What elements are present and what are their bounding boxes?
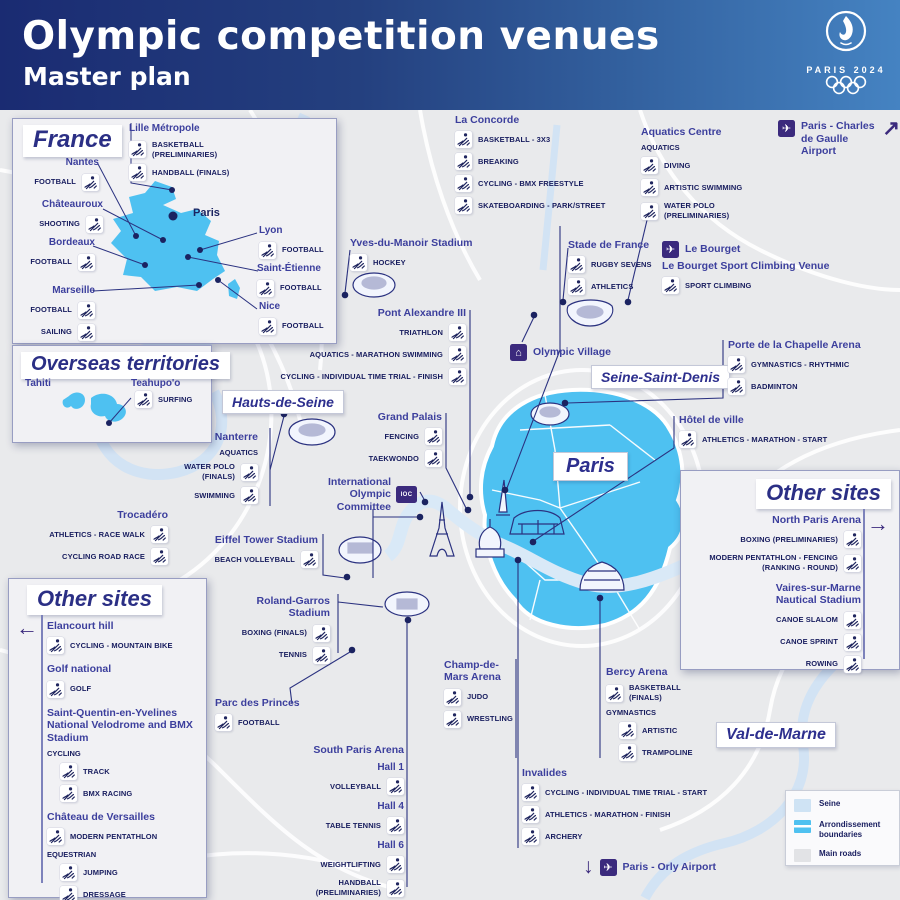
- venue-entry: Golf nationalGOLF: [47, 663, 197, 697]
- venue-name: Vaires-sur-Marne Nautical Stadium: [761, 582, 861, 607]
- venue-entry: North Paris ArenaBOXING (PRELIMINARIES)M…: [689, 514, 861, 573]
- france-city-lyon: LyonFOOTBALL: [259, 225, 335, 264]
- sport-row: ARCHERY: [522, 828, 737, 845]
- venue-le-bourget: ✈Le BourgetLe Bourget Sport Climbing Ven…: [662, 241, 842, 299]
- sport-label: ATHLETICS - MARATHON - FINISH: [545, 810, 671, 820]
- marathon-swimming-icon: [449, 346, 466, 363]
- football-icon: [257, 280, 274, 297]
- volleyball-icon: [387, 778, 404, 795]
- equestrian-jumping-icon: [60, 864, 77, 881]
- football-icon: [78, 254, 95, 271]
- venue-name: Grand Palais: [330, 411, 442, 423]
- region-label-paris: Paris: [553, 452, 628, 481]
- other-sites-west-panel: Other sites ← Elancourt hillCYCLING - MO…: [8, 578, 207, 898]
- page-subtitle: Master plan: [23, 62, 191, 91]
- sport-row: ARTISTIC SWIMMING: [641, 179, 801, 196]
- track-cycling-icon: [60, 763, 77, 780]
- sport-label: MODERN PENTATHLON: [70, 832, 157, 842]
- athletics-icon: [568, 278, 585, 295]
- artistic-swimming-icon: [641, 179, 658, 196]
- legend-label: Main roads: [819, 849, 861, 859]
- sport-row: CYCLING - INDIVIDUAL TIME TRIAL - FINISH: [266, 368, 466, 385]
- venue-entry: Elancourt hillCYCLING - MOUNTAIN BIKE: [47, 620, 197, 654]
- venue-olympic-village: ⌂Olympic Village: [510, 344, 640, 361]
- sport-row: BASKETBALL (FINALS): [606, 683, 711, 703]
- legend-label: Arrondissement boundaries: [819, 820, 891, 841]
- sport-label: BMX RACING: [83, 789, 132, 799]
- venue-champ-de-mars: Champ-de-Mars ArenaJUDOWRESTLING: [444, 659, 522, 733]
- venue-invalides: InvalidesCYCLING - INDIVIDUAL TIME TRIAL…: [522, 767, 737, 850]
- sport-row: FOOTBALL: [27, 254, 95, 271]
- sport-label: CYCLING ROAD RACE: [62, 552, 145, 562]
- group-subheading: Hall 6: [294, 840, 404, 851]
- sport-label: CYCLING - BMX FREESTYLE: [478, 179, 584, 189]
- venue-name: Champ-de-Mars Arena: [444, 659, 522, 684]
- diving-icon: [641, 157, 658, 174]
- arrow-left-icon: ←: [16, 617, 38, 639]
- ioc-icon: IOC: [396, 486, 417, 503]
- breaking-icon: [455, 153, 472, 170]
- shooting-icon: [86, 216, 103, 233]
- tennis-icon: [313, 647, 330, 664]
- marathon-icon: [679, 431, 696, 448]
- france-city-bordeaux: BordeauxFOOTBALL: [27, 237, 95, 276]
- legend-item-seine: Seine: [794, 799, 891, 812]
- sport-label: TRACK: [83, 767, 110, 777]
- sport-row: SHOOTING: [23, 216, 103, 233]
- france-inset-panel: France Paris Lille MétropoleBASKETBALL (…: [12, 118, 337, 344]
- sport-label: SPORT CLIMBING: [685, 281, 751, 291]
- sport-row: ATHLETICS - MARATHON - FINISH: [522, 806, 737, 823]
- sport-row: JUDO: [444, 689, 522, 706]
- sport-label: WATER POLO (PRELIMINARIES): [664, 201, 744, 221]
- sport-label: RUGBY SEVENS: [591, 260, 652, 270]
- venue-name: Nantes: [27, 157, 99, 169]
- arrondissement-color-swatch: [794, 820, 811, 833]
- legend: Seine Arrondissement boundaries Main roa…: [785, 790, 900, 866]
- sailing-icon: [78, 324, 95, 341]
- main-roads-color-swatch: [794, 849, 811, 862]
- paris-dot: [169, 212, 178, 221]
- legend-item-arrondissement: Arrondissement boundaries: [794, 820, 891, 841]
- cycling-time-trial-icon: [449, 368, 466, 385]
- marathon-icon: [522, 806, 539, 823]
- group-subheading: EQUESTRIAN: [47, 850, 197, 859]
- sport-row: BEACH VOLLEYBALL: [210, 551, 318, 568]
- region-label-hauts-de-seine: Hauts-de-Seine: [222, 390, 344, 414]
- sport-row: ARTISTIC: [619, 722, 711, 739]
- venue-grand-palais: Grand PalaisFENCINGTAEKWONDO: [330, 411, 442, 472]
- archery-icon: [522, 828, 539, 845]
- sport-label: CYCLING - MOUNTAIN BIKE: [70, 641, 173, 651]
- arrow-northeast-icon: ↗: [882, 120, 900, 139]
- fencing-icon: [425, 428, 442, 445]
- sport-row: WATER POLO (PRELIMINARIES): [641, 201, 801, 221]
- france-city-marseille: MarseilleFOOTBALLSAILING: [27, 285, 95, 346]
- group-subheading: CYCLING: [47, 749, 197, 758]
- venue-name: Bordeaux: [27, 237, 95, 249]
- group-subheading: AQUATICS: [88, 448, 258, 457]
- sport-row: TABLE TENNIS: [294, 817, 404, 834]
- water-polo-icon: [641, 203, 658, 220]
- badminton-icon: [728, 378, 745, 395]
- olympic-village-icon: ⌂: [510, 344, 527, 361]
- venue-name: Le Bourget: [685, 243, 740, 255]
- venue-name: South Paris Arena: [294, 744, 404, 756]
- arrow-right-icon: →: [867, 513, 889, 535]
- airport-cdg-label: Paris - Charles de Gaulle Airport: [801, 120, 876, 158]
- sport-label: JUDO: [467, 692, 488, 702]
- sport-label: SHOOTING: [39, 219, 80, 229]
- venue-name: Olympic Village: [533, 346, 611, 358]
- sport-row: CANOE SPRINT: [689, 634, 861, 651]
- venue-name: Roland-Garros Stadium: [216, 595, 330, 620]
- sport-label: WATER POLO (FINALS): [173, 462, 235, 482]
- sport-label: JUMPING: [83, 868, 118, 878]
- france-panel-title: France: [23, 125, 122, 157]
- venue-name: Parc des Princes: [215, 697, 325, 709]
- venue-ioc: International Olympic CommitteeIOC: [295, 476, 417, 513]
- sport-label: BOXING (FINALS): [242, 628, 307, 638]
- venue-south-paris-arena: South Paris ArenaHall 1VOLLEYBALLHall 4T…: [294, 744, 404, 900]
- venue-name: Eiffel Tower Stadium: [210, 534, 318, 546]
- sport-label: ATHLETICS - RACE WALK: [49, 530, 145, 540]
- sport-row: FOOTBALL: [215, 714, 325, 731]
- sport-row: CYCLING ROAD RACE: [38, 548, 168, 565]
- sport-label: BASKETBALL (PRELIMINARIES): [152, 140, 242, 160]
- venue-name: Lille Métropole: [129, 123, 329, 135]
- sport-row: GYMNASTICS - RHYTHMIC: [728, 356, 883, 373]
- venue-name: Porte de la Chapelle Arena: [728, 339, 883, 351]
- football-icon: [215, 714, 232, 731]
- sport-label: BASKETBALL (FINALS): [629, 683, 691, 703]
- paris-city-label: Paris: [193, 207, 220, 219]
- olympic-rings-icon: [822, 75, 870, 95]
- sport-row: CYCLING - MOUNTAIN BIKE: [47, 637, 197, 654]
- sport-row: ATHLETICS - RACE WALK: [38, 526, 168, 543]
- sport-row: TENNIS: [216, 647, 330, 664]
- sport-label: HOCKEY: [373, 258, 406, 268]
- sport-row: FOOTBALL: [259, 318, 335, 335]
- paris-2024-logo: PARIS 2024: [806, 8, 886, 100]
- sport-row: SPORT CLIMBING: [662, 277, 842, 294]
- airport-orly: ↓ ✈ Paris - Orly Airport: [583, 858, 716, 877]
- sport-label: FOOTBALL: [280, 283, 322, 293]
- venue-trocadero: TrocadéroATHLETICS - RACE WALKCYCLING RO…: [38, 509, 168, 570]
- sport-row: VOLLEYBALL: [294, 778, 404, 795]
- poster: Olympic competition venues Master plan P…: [0, 0, 900, 900]
- judo-icon: [444, 689, 461, 706]
- sport-row: SAILING: [27, 324, 95, 341]
- group-subheading: AQUATICS: [641, 143, 801, 152]
- sport-label: BEACH VOLLEYBALL: [215, 555, 295, 565]
- venue-yves-du-manoir: Yves-du-Manoir StadiumHOCKEY: [350, 237, 510, 276]
- venue-name: La Concorde: [455, 114, 690, 126]
- venue-name: Nice: [259, 301, 335, 313]
- sport-row: WATER POLO (FINALS): [88, 462, 258, 482]
- region-label-seine-saint-denis: Seine-Saint-Denis: [591, 365, 730, 389]
- sport-row: WEIGHTLIFTING: [294, 856, 404, 873]
- sport-label: CYCLING - INDIVIDUAL TIME TRIAL - START: [545, 788, 707, 798]
- modern-pentathlon-icon: [47, 828, 64, 845]
- venue-bercy: Bercy ArenaBASKETBALL (FINALS)GYMNASTICS…: [606, 666, 711, 766]
- sport-row: TRACK: [60, 763, 197, 780]
- sport-row: BOXING (FINALS): [216, 625, 330, 642]
- venue-hotel-de-ville: Hôtel de villeATHLETICS - MARATHON - STA…: [679, 414, 854, 453]
- sport-label: SWIMMING: [194, 491, 235, 501]
- sport-label: MODERN PENTATHLON - FENCING (RANKING - R…: [706, 553, 838, 573]
- sport-label: SAILING: [41, 327, 72, 337]
- venue-name: Aquatics Centre: [641, 126, 801, 138]
- sport-row: DRESSAGE: [60, 886, 197, 900]
- france-city-nantes: NantesFOOTBALL: [27, 157, 99, 196]
- other-sites-east-panel: Other sites → North Paris ArenaBOXING (P…: [680, 470, 900, 670]
- venue-name: Château de Versailles: [47, 811, 197, 823]
- cycling-time-trial-icon: [522, 784, 539, 801]
- sport-label: SURFING: [158, 395, 192, 405]
- sport-row: FENCING: [330, 428, 442, 445]
- sport-label: AQUATICS - MARATHON SWIMMING: [310, 350, 443, 360]
- sport-label: DIVING: [664, 161, 690, 171]
- beach-volleyball-icon: [301, 551, 318, 568]
- venue-aquatics-centre: Aquatics CentreAQUATICSDIVINGARTISTIC SW…: [641, 126, 801, 226]
- sport-label: FOOTBALL: [238, 718, 280, 728]
- venue-name: Golf national: [47, 663, 197, 675]
- sport-row: GOLF: [47, 681, 197, 698]
- sport-row: BASKETBALL (PRELIMINARIES): [129, 140, 329, 160]
- basketball-icon: [129, 141, 146, 158]
- sport-label: VOLLEYBALL: [330, 782, 381, 792]
- football-icon: [78, 302, 95, 319]
- golf-icon: [47, 681, 64, 698]
- weightlifting-icon: [387, 856, 404, 873]
- flame-emblem-icon: [824, 8, 868, 58]
- sport-row: CANOE SLALOM: [689, 612, 861, 629]
- france-city-chateauroux: ChâteaurouxSHOOTING: [23, 199, 103, 238]
- sport-label: BOXING (PRELIMINARIES): [740, 535, 838, 545]
- sport-label: CYCLING - INDIVIDUAL TIME TRIAL - FINISH: [281, 372, 443, 382]
- sport-label: ARTISTIC: [642, 726, 677, 736]
- sport-label: CANOE SLALOM: [776, 615, 838, 625]
- sport-row: MODERN PENTATHLON - FENCING (RANKING - R…: [689, 553, 861, 573]
- sport-row: MODERN PENTATHLON: [47, 828, 197, 845]
- table-tennis-icon: [387, 817, 404, 834]
- dressage-icon: [60, 886, 77, 900]
- venue-entry: Château de VersaillesMODERN PENTATHLONEQ…: [47, 811, 197, 900]
- swimming-icon: [241, 487, 258, 504]
- sport-label: WEIGHTLIFTING: [321, 860, 381, 870]
- region-label-val-de-marne: Val-de-Marne: [716, 722, 836, 748]
- page-title: Olympic competition venues: [22, 14, 660, 59]
- airport-orly-label: Paris - Orly Airport: [623, 861, 717, 874]
- sport-label: FENCING: [385, 432, 419, 442]
- basketball-icon: [606, 685, 623, 702]
- venue-name: Hôtel de ville: [679, 414, 854, 426]
- sport-row: FOOTBALL: [257, 280, 336, 297]
- venue-name: Châteauroux: [23, 199, 103, 211]
- sport-row: FOOTBALL: [259, 242, 335, 259]
- sport-row: TRAMPOLINE: [619, 744, 711, 761]
- sport-label: FOOTBALL: [34, 177, 76, 187]
- seine-color-swatch: [794, 799, 811, 812]
- venue-name: Le Bourget Sport Climbing Venue: [662, 260, 842, 272]
- arrow-down-icon: ↓: [583, 858, 594, 877]
- modern-pentathlon-fencing-icon: [844, 555, 861, 572]
- venue-name: Trocadéro: [38, 509, 168, 521]
- bmx-racing-icon: [60, 785, 77, 802]
- sport-row: SWIMMING: [88, 487, 258, 504]
- sport-label: ARTISTIC SWIMMING: [664, 183, 742, 193]
- legend-label: Seine: [819, 799, 840, 809]
- venue-name: North Paris Arena: [761, 514, 861, 526]
- sport-label: TRIATHLON: [399, 328, 443, 338]
- road-cycling-icon: [151, 548, 168, 565]
- sport-row: HOCKEY: [350, 254, 510, 271]
- bmx-freestyle-icon: [455, 175, 472, 192]
- sport-row: FOOTBALL: [27, 302, 95, 319]
- venue-entry: Vaires-sur-Marne Nautical StadiumCANOE S…: [689, 582, 861, 673]
- sport-row: BOXING (PRELIMINARIES): [689, 531, 861, 548]
- sport-label: BASKETBALL - 3X3: [478, 135, 550, 145]
- water-polo-icon: [241, 464, 258, 481]
- taekwondo-icon: [425, 450, 442, 467]
- sport-label: FOOTBALL: [30, 305, 72, 315]
- sport-row: SURFING: [135, 391, 192, 408]
- sport-label: ARCHERY: [545, 832, 583, 842]
- boxing-icon: [313, 625, 330, 642]
- venue-name: Saint-Étienne: [257, 263, 336, 275]
- sport-row: WRESTLING: [444, 711, 522, 728]
- venue-name: Saint-Quentin-en-Yvelines National Velod…: [47, 707, 197, 744]
- france-shape: [111, 181, 225, 291]
- sport-row: TAEKWONDO: [330, 450, 442, 467]
- sport-climbing-icon: [662, 277, 679, 294]
- france-city-lille: Lille MétropoleBASKETBALL (PRELIMINARIES…: [129, 123, 329, 186]
- sport-label: FOOTBALL: [282, 245, 324, 255]
- divider: [41, 615, 43, 883]
- sport-label: FOOTBALL: [30, 257, 72, 267]
- sport-row: ATHLETICS - MARATHON - START: [679, 431, 854, 448]
- venue-eiffel-tower-stadium: Eiffel Tower StadiumBEACH VOLLEYBALL: [210, 534, 318, 573]
- sport-row: ROWING: [689, 656, 861, 673]
- venue-name: International Olympic Committee: [299, 476, 391, 513]
- sport-row: AQUATICS - MARATHON SWIMMING: [266, 346, 466, 363]
- sport-label: TAEKWONDO: [369, 454, 419, 464]
- handball-icon: [387, 880, 404, 897]
- sport-label: HANDBALL (PRELIMINARIES): [294, 878, 381, 898]
- canoe-slalom-icon: [844, 612, 861, 629]
- mountain-bike-icon: [47, 637, 64, 654]
- sport-label: TABLE TENNIS: [326, 821, 381, 831]
- wrestling-icon: [444, 711, 461, 728]
- venue-porte-de-la-chapelle: Porte de la Chapelle ArenaGYMNASTICS - R…: [728, 339, 883, 400]
- canoe-sprint-icon: [844, 634, 861, 651]
- overseas-territories-panel: Overseas territories Tahiti Teahupo'o SU…: [12, 345, 212, 443]
- sport-label: SKATEBOARDING - PARK/STREET: [478, 201, 605, 211]
- venue-roland-garros: Roland-Garros StadiumBOXING (FINALS)TENN…: [216, 595, 330, 669]
- sport-label: ATHLETICS: [591, 282, 633, 292]
- hockey-icon: [350, 254, 367, 271]
- header: Olympic competition venues Master plan P…: [0, 0, 900, 110]
- sport-label: FOOTBALL: [282, 321, 324, 331]
- boxing-icon: [844, 531, 861, 548]
- sport-label: WRESTLING: [467, 714, 513, 724]
- group-subheading: Hall 1: [294, 762, 404, 773]
- venue-name: Lyon: [259, 225, 335, 237]
- sport-label: ATHLETICS - MARATHON - START: [702, 435, 827, 445]
- sport-label: GYMNASTICS - RHYTHMIC: [751, 360, 849, 370]
- handball-icon: [129, 164, 146, 181]
- triathlon-icon: [449, 324, 466, 341]
- football-icon: [82, 174, 99, 191]
- trampoline-icon: [619, 744, 636, 761]
- divider: [863, 509, 865, 659]
- sport-row: BADMINTON: [728, 378, 883, 395]
- sport-label: GOLF: [70, 684, 91, 694]
- sport-label: TRAMPOLINE: [642, 748, 693, 758]
- football-icon: [259, 242, 276, 259]
- venue-entry: Saint-Quentin-en-Yvelines National Velod…: [47, 707, 197, 802]
- sport-row: HANDBALL (PRELIMINARIES): [294, 878, 404, 898]
- rowing-icon: [844, 656, 861, 673]
- plane-icon: ✈: [600, 859, 617, 876]
- venue-parc-des-princes: Parc des PrincesFOOTBALL: [215, 697, 325, 736]
- plane-icon: ✈: [662, 241, 679, 258]
- artistic-gymnastics-icon: [619, 722, 636, 739]
- rhythmic-gymnastics-icon: [728, 356, 745, 373]
- sport-row: HANDBALL (FINALS): [129, 164, 329, 181]
- sport-label: ROWING: [806, 659, 838, 669]
- sport-label: CANOE SPRINT: [780, 637, 838, 647]
- venue-name: Invalides: [522, 767, 737, 779]
- group-subheading: GYMNASTICS: [606, 708, 711, 717]
- sport-row: BMX RACING: [60, 785, 197, 802]
- venue-name: Yves-du-Manoir Stadium: [350, 237, 510, 249]
- basketball-3x3-icon: [455, 131, 472, 148]
- sport-row: CYCLING - INDIVIDUAL TIME TRIAL - START: [522, 784, 737, 801]
- rugby-sevens-icon: [568, 256, 585, 273]
- venue-name: Elancourt hill: [47, 620, 197, 632]
- surfing-icon: [135, 391, 152, 408]
- race-walk-icon: [151, 526, 168, 543]
- legend-item-main-roads: Main roads: [794, 849, 891, 862]
- sport-label: TENNIS: [279, 650, 307, 660]
- sport-label: BADMINTON: [751, 382, 798, 392]
- sport-row: JUMPING: [60, 864, 197, 881]
- sport-row: DIVING: [641, 157, 801, 174]
- brand-text: PARIS 2024: [806, 65, 886, 75]
- sport-label: DRESSAGE: [83, 890, 126, 900]
- map-canvas: Hauts-de-Seine Seine-Saint-Denis Paris V…: [0, 110, 900, 900]
- group-subheading: Hall 4: [294, 801, 404, 812]
- venue-name: Marseille: [27, 285, 95, 297]
- skateboarding-icon: [455, 197, 472, 214]
- france-city-saint-etienne: Saint-ÉtienneFOOTBALL: [257, 263, 336, 302]
- sport-row: FOOTBALL: [27, 174, 99, 191]
- sport-label: HANDBALL (FINALS): [152, 168, 229, 178]
- football-icon: [259, 318, 276, 335]
- france-city-nice: NiceFOOTBALL: [259, 301, 335, 340]
- sport-label: BREAKING: [478, 157, 519, 167]
